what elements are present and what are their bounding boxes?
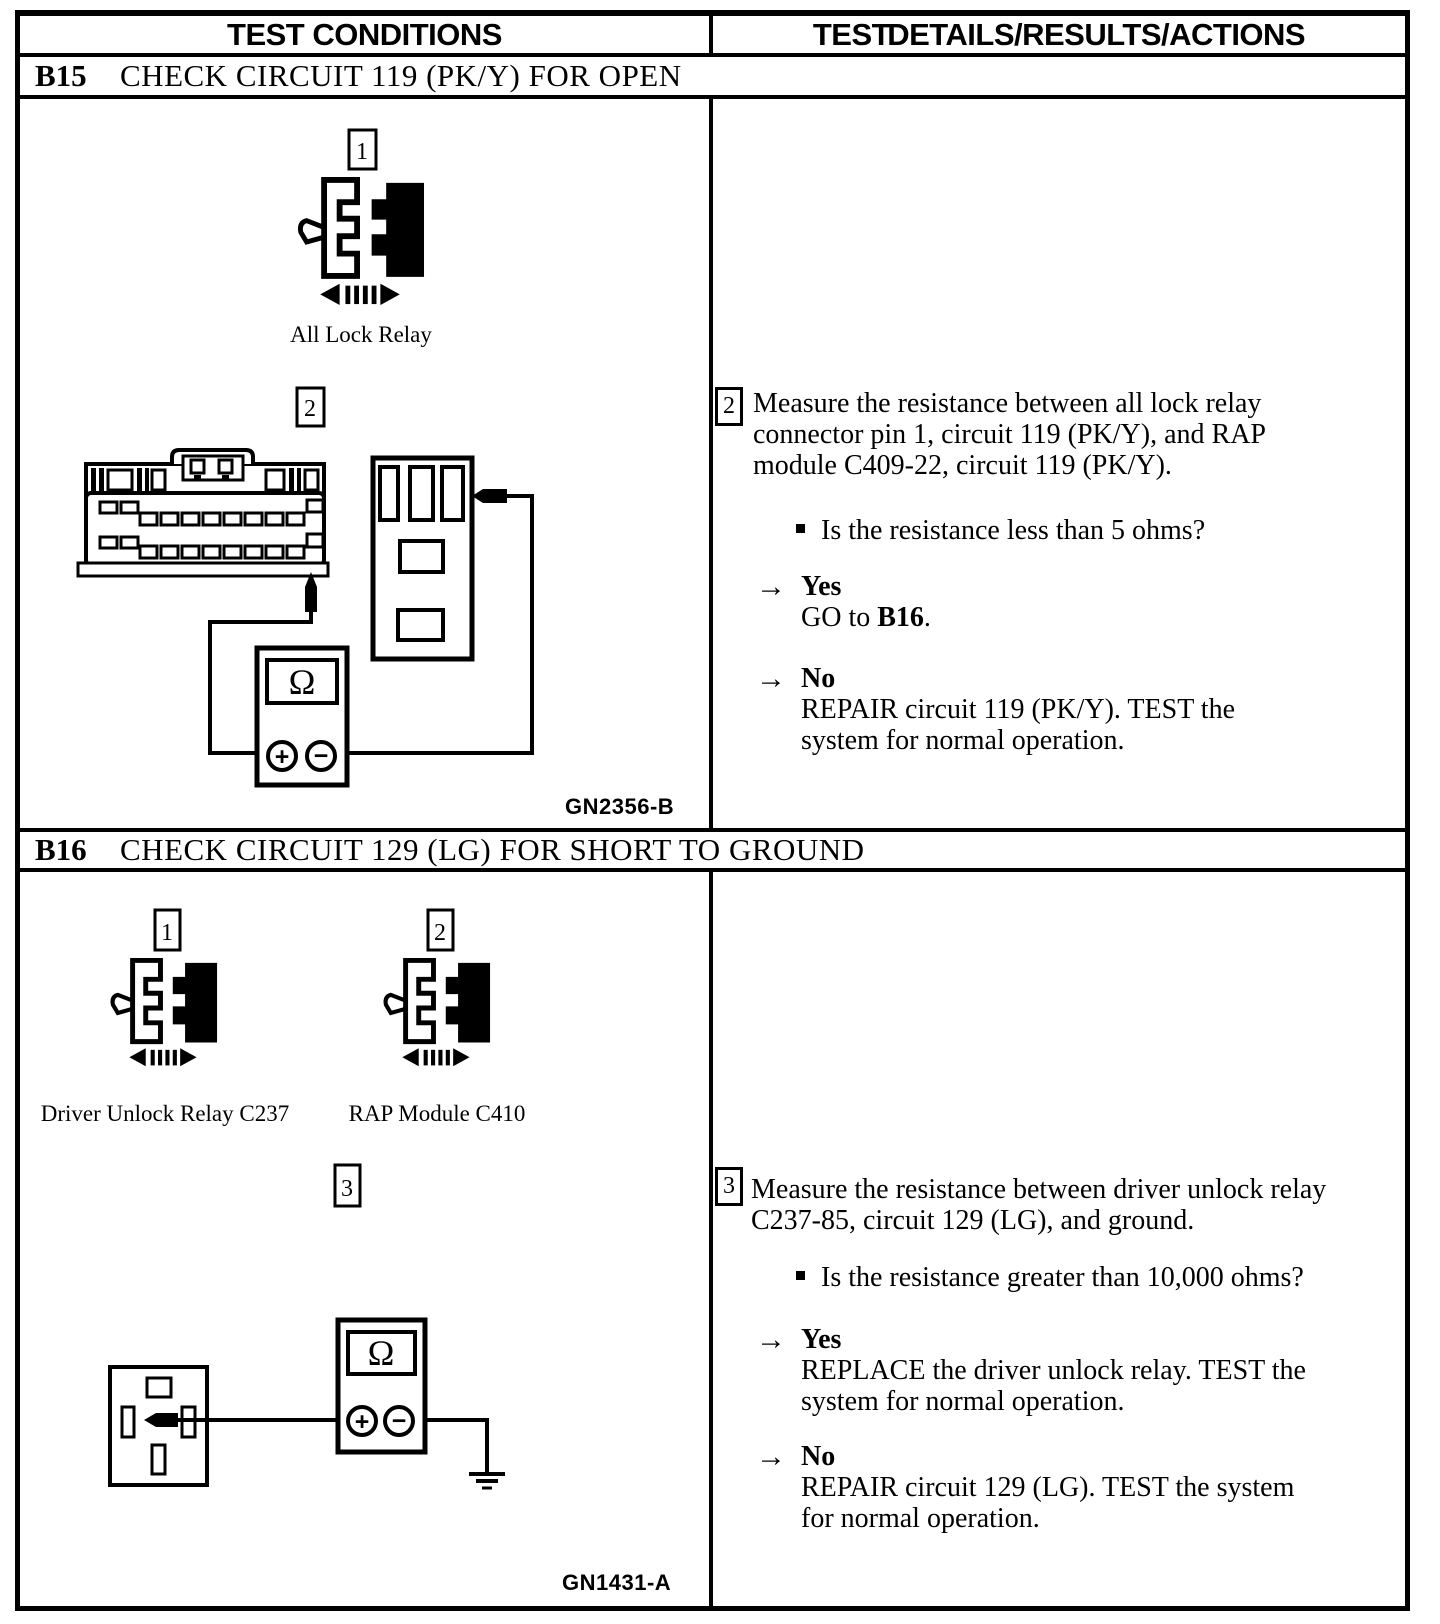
svg-text:1: 1 (161, 920, 173, 946)
b16-figure-code: GN1431-A (562, 1570, 671, 1595)
b16-detail-step-badge: 3 (715, 1167, 743, 1206)
svg-text:2: 2 (304, 396, 316, 422)
header-test-details-label: TEST DETAILS/RESULTS/ACTIONS (813, 17, 1305, 53)
b16-diagram-svg: 1 2 Driver Unlock Relay C237 RAP Module (20, 872, 709, 1605)
bullet-icon (796, 524, 805, 533)
b16-title-row: B16 CHECK CIRCUIT 129 (LG) FOR SHORT TO … (20, 832, 1405, 872)
bullet-icon (796, 1271, 805, 1280)
b16-test-code: B16 (35, 832, 120, 868)
pinpoint-test-table: TEST CONDITIONS TEST DETAILS/RESULTS/ACT… (15, 10, 1410, 1611)
disconnect-relay-icon (386, 960, 490, 1066)
rap-module-connector-icon (78, 450, 328, 576)
b15-test-title: CHECK CIRCUIT 119 (PK/Y) FOR OPEN (120, 58, 682, 94)
minus-terminal-icon: − (392, 1407, 407, 1435)
b16-test-title: CHECK CIRCUIT 129 (LG) FOR SHORT TO GROU… (120, 832, 865, 868)
b15-conditions-cell: 1 All Lock Relay 2 (20, 99, 713, 828)
b15-yes-result: Yes GO to B16. (801, 571, 931, 633)
b15-diagram-svg: 1 All Lock Relay 2 (20, 99, 709, 828)
result-arrow-icon: → (756, 571, 786, 602)
probe-icon (472, 489, 507, 503)
header-test-details: TEST DETAILS/RESULTS/ACTIONS (713, 16, 1405, 53)
ohm-symbol: Ω (368, 1333, 395, 1373)
b15-instruction: Measure the resistance between all lock … (753, 388, 1266, 481)
b16-question-row: Is the resistance greater than 10,000 oh… (796, 1262, 1304, 1293)
driver-unlock-relay-label: Driver Unlock Relay C237 (41, 1101, 289, 1126)
b15-question: Is the resistance less than 5 ohms? (821, 515, 1205, 546)
b16-content-row: 1 2 Driver Unlock Relay C237 RAP Module (20, 872, 1405, 1606)
b15-no-result: No REPAIR circuit 119 (PK/Y). TEST the s… (801, 663, 1235, 756)
b15-test-code: B15 (35, 58, 120, 94)
rap-module-label: RAP Module C410 (349, 1101, 526, 1126)
b15-content-row: 1 All Lock Relay 2 (20, 99, 1405, 832)
plus-terminal-icon: + (355, 1408, 370, 1436)
b15-figure-code: GN2356-B (565, 794, 674, 819)
b16-step1-badge: 1 (155, 910, 180, 950)
disconnect-relay-icon (300, 180, 424, 305)
b15-step2-badge: 2 (297, 388, 324, 426)
ohmmeter-icon: Ω + − (338, 1320, 425, 1452)
ohmmeter-icon: Ω + − (257, 648, 347, 785)
minus-terminal-icon: − (314, 742, 329, 770)
test-lead-wire (425, 1420, 487, 1474)
b16-step3-badge: 3 (335, 1165, 360, 1206)
disconnect-relay-icon (113, 960, 217, 1066)
b15-title-row: B15 CHECK CIRCUIT 119 (PK/Y) FOR OPEN (20, 57, 1405, 99)
svg-text:2: 2 (434, 920, 446, 946)
b16-details-cell: 3 Measure the resistance between driver … (713, 872, 1405, 1606)
b15-step1-badge: 1 (349, 130, 376, 169)
svg-text:3: 3 (341, 1176, 353, 1202)
b16-question: Is the resistance greater than 10,000 oh… (821, 1262, 1304, 1293)
header-test-conditions: TEST CONDITIONS (20, 16, 713, 53)
relay-socket-icon (373, 458, 472, 659)
probe-icon (305, 572, 317, 612)
plus-terminal-icon: + (275, 743, 290, 771)
all-lock-relay-label: All Lock Relay (290, 322, 432, 347)
ohm-symbol: Ω (289, 662, 316, 702)
b16-instruction: Measure the resistance between driver un… (751, 1174, 1326, 1236)
svg-text:1: 1 (356, 139, 368, 165)
b16-no-result: No REPAIR circuit 129 (LG). TEST the sys… (801, 1441, 1294, 1534)
b15-question-row: Is the resistance less than 5 ohms? (796, 515, 1205, 546)
ground-icon (469, 1474, 505, 1488)
result-arrow-icon: → (756, 1441, 786, 1472)
b16-conditions-cell: 1 2 Driver Unlock Relay C237 RAP Module (20, 872, 713, 1606)
b16-step2-badge: 2 (428, 910, 453, 950)
b16-yes-result: Yes REPLACE the driver unlock relay. TES… (801, 1324, 1306, 1417)
header-test-conditions-label: TEST CONDITIONS (227, 17, 502, 53)
b15-detail-step-badge: 2 (715, 387, 743, 426)
result-arrow-icon: → (756, 1324, 786, 1355)
service-manual-page: TEST CONDITIONS TEST DETAILS/RESULTS/ACT… (0, 0, 1440, 1624)
b15-details-cell: 2 Measure the resistance between all loc… (713, 99, 1405, 828)
table-header-row: TEST CONDITIONS TEST DETAILS/RESULTS/ACT… (20, 16, 1405, 57)
result-arrow-icon: → (756, 663, 786, 694)
